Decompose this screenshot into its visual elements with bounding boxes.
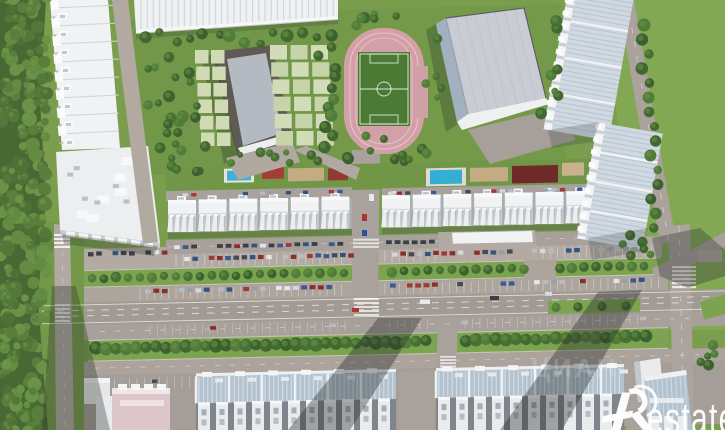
- svg-text:ЦИАН: ЦИАН: [531, 353, 618, 383]
- svg-text:estate: estate: [647, 393, 725, 430]
